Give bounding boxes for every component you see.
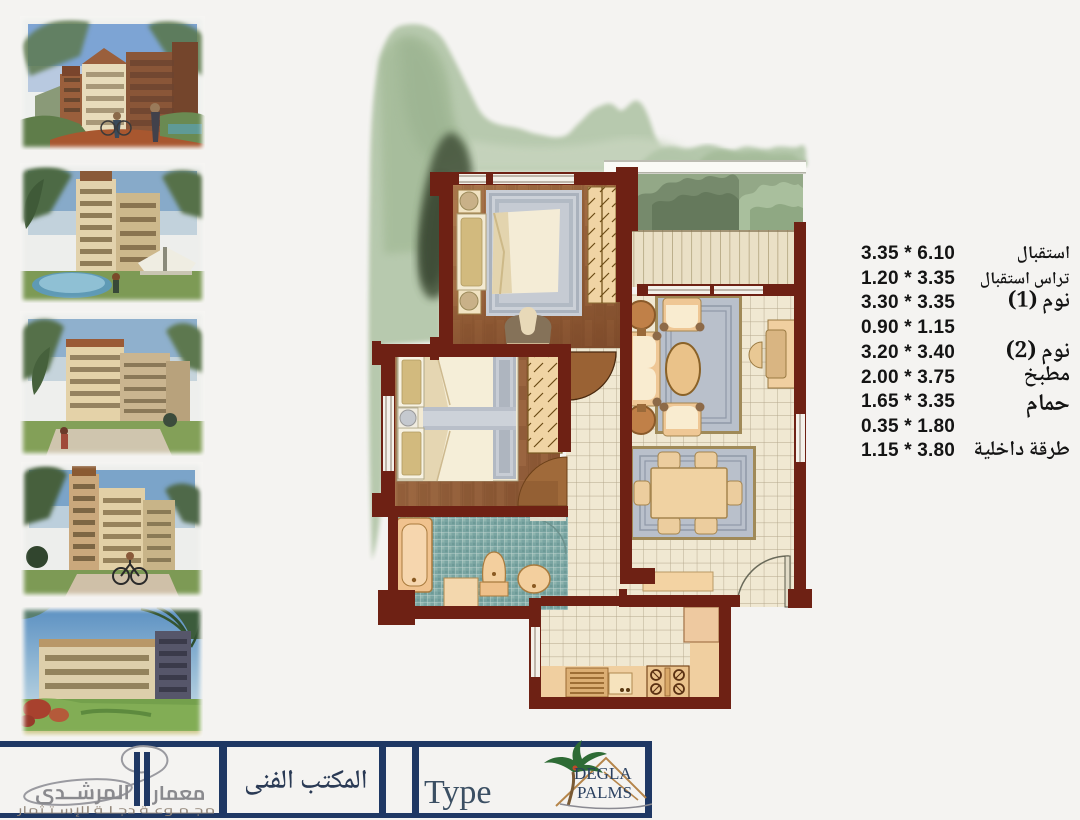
svg-text:0.35 * 1.80: 0.35 * 1.80 [861, 416, 955, 437]
svg-text:1.15 * 3.80: 1.15 * 3.80 [861, 440, 955, 461]
svg-text:3.30 * 3.35: 3.30 * 3.35 [861, 292, 955, 313]
svg-text:PALMS: PALMS [577, 783, 632, 802]
svg-text:DEGLA: DEGLA [574, 764, 632, 783]
svg-text:Type: Type [424, 774, 492, 811]
svg-text:0.90 * 1.15: 0.90 * 1.15 [861, 317, 955, 338]
svg-text:3.35 * 6.10: 3.35 * 6.10 [861, 243, 955, 264]
svg-text:3.20 * 3.40: 3.20 * 3.40 [861, 342, 955, 363]
svg-text:2.00 * 3.75: 2.00 * 3.75 [861, 367, 955, 388]
svg-text:1.65 * 3.35: 1.65 * 3.35 [861, 391, 955, 412]
svg-text:1.20 * 3.35: 1.20 * 3.35 [861, 268, 955, 289]
